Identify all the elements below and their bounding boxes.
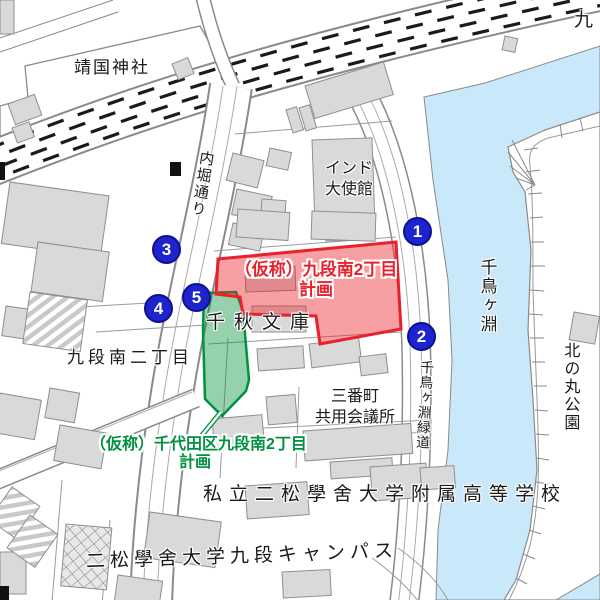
- map-marker-5[interactable]: 5: [182, 283, 211, 312]
- label-private-high-school: 私立二松學舍大学附属高等学校: [203, 484, 567, 506]
- map-marker-2[interactable]: 2: [407, 322, 436, 351]
- map-marker-4[interactable]: 4: [144, 294, 173, 323]
- label-sanbancho-line2: 共用会議所: [315, 409, 395, 426]
- label-red-project: （仮称）九段南2丁目 計画: [216, 260, 416, 299]
- map-marker-3[interactable]: 3: [152, 235, 181, 264]
- label-yasukuni-shrine: 靖国神社: [74, 58, 150, 78]
- map-marker-1-number: 1: [413, 222, 422, 242]
- label-green-project-line1: （仮称）千代田区九段南2丁目: [90, 436, 307, 453]
- label-green-project-line2: 計画: [90, 454, 300, 472]
- map-canvas: [0, 0, 600, 600]
- label-chiaki-bunko: 千秋文庫: [206, 312, 318, 334]
- label-green-project: （仮称）千代田区九段南2丁目 計画: [90, 436, 300, 473]
- map-marker-2-number: 2: [417, 327, 426, 347]
- label-red-project-line1: （仮称）九段南2丁目: [235, 260, 397, 279]
- map-marker-4-number: 4: [154, 299, 163, 319]
- label-kudanminami-2chome: 九段南二丁目: [67, 348, 193, 368]
- label-red-project-line2: 計画: [216, 280, 416, 300]
- map-marker-3-number: 3: [162, 240, 171, 260]
- label-india-embassy-line1: インド: [325, 160, 373, 177]
- label-sanbancho-line1: 三番町: [331, 388, 379, 405]
- label-india-embassy: インド 大使館: [316, 158, 382, 200]
- label-chidorigafuchi: 千鳥ヶ淵: [477, 258, 497, 334]
- map: 靖国神社 九 内堀通り インド 大使館 千秋文庫 九段南二丁目 三番町 共用会議…: [0, 0, 600, 600]
- map-marker-5-number: 5: [192, 288, 201, 308]
- label-sanbancho-hall: 三番町 共用会議所: [300, 386, 410, 428]
- map-marker-1[interactable]: 1: [403, 217, 432, 246]
- label-india-embassy-line2: 大使館: [325, 181, 373, 198]
- label-kudan-partial: 九: [574, 10, 593, 32]
- label-kitanomaru-park: 北の丸公園: [560, 342, 578, 432]
